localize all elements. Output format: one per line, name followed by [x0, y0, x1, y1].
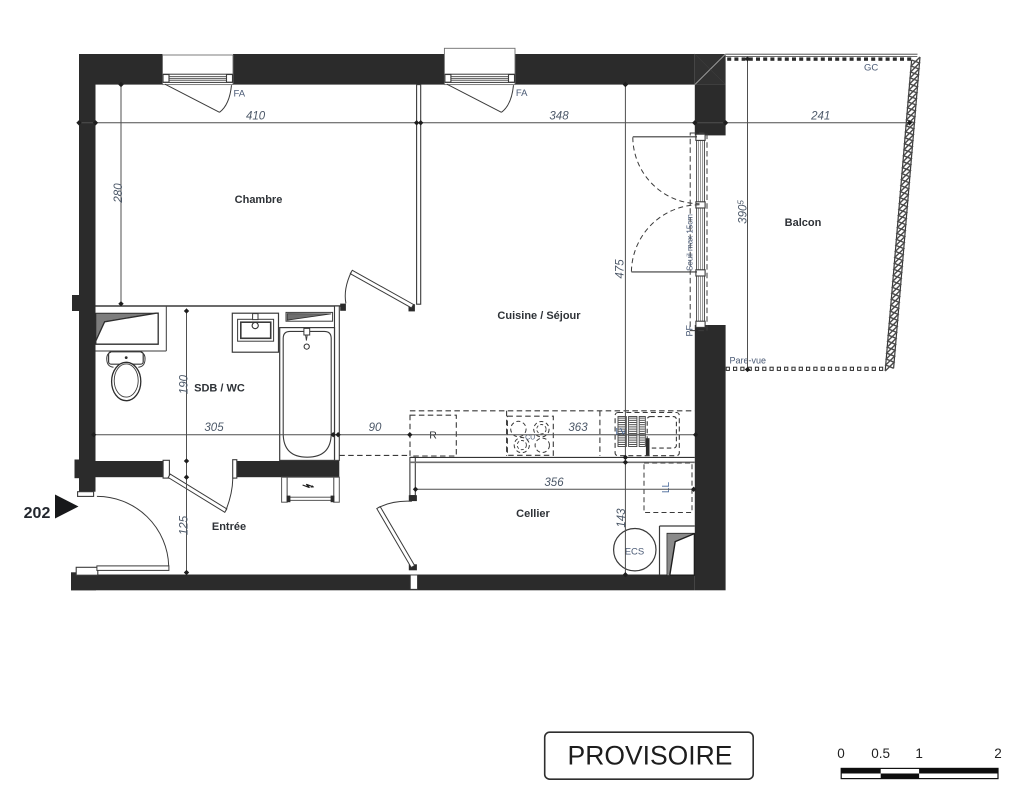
- svg-text:LL: LL: [661, 482, 672, 494]
- svg-text:348: 348: [549, 111, 569, 123]
- svg-text:202: 202: [24, 505, 51, 522]
- svg-text:Seuil max 15cm: Seuil max 15cm: [685, 214, 694, 271]
- svg-text:PROVISOIRE: PROVISOIRE: [568, 741, 733, 771]
- svg-text:143: 143: [616, 508, 628, 528]
- svg-text:GC: GC: [864, 63, 878, 74]
- svg-text:241: 241: [810, 111, 830, 123]
- svg-text:FA: FA: [234, 89, 246, 100]
- svg-text:FA: FA: [516, 88, 528, 99]
- svg-text:190: 190: [179, 374, 191, 394]
- svg-text:356: 356: [544, 477, 564, 489]
- svg-text:Chambre: Chambre: [235, 194, 283, 206]
- svg-text:Balcon: Balcon: [785, 217, 822, 229]
- svg-text:PF: PF: [684, 324, 694, 336]
- svg-text:475: 475: [615, 259, 627, 279]
- svg-text:R: R: [429, 430, 437, 442]
- svg-text:SDB / WC: SDB / WC: [194, 383, 245, 395]
- svg-text:1: 1: [915, 746, 923, 761]
- svg-text:Entrée: Entrée: [212, 521, 246, 533]
- svg-text:Cellier: Cellier: [516, 508, 550, 520]
- svg-text:ECS: ECS: [625, 547, 645, 558]
- svg-text:0.5: 0.5: [871, 746, 890, 761]
- svg-text:Cuisine / Séjour: Cuisine / Séjour: [497, 310, 581, 322]
- svg-text:0: 0: [837, 746, 845, 761]
- svg-text:2: 2: [994, 746, 1002, 761]
- svg-text:410: 410: [246, 111, 266, 123]
- svg-text:363: 363: [568, 422, 588, 434]
- svg-text:125: 125: [179, 515, 191, 535]
- svg-text:CU: CU: [525, 435, 535, 442]
- svg-text:280: 280: [113, 183, 125, 204]
- svg-text:90: 90: [369, 422, 382, 434]
- svg-text:305: 305: [204, 422, 224, 434]
